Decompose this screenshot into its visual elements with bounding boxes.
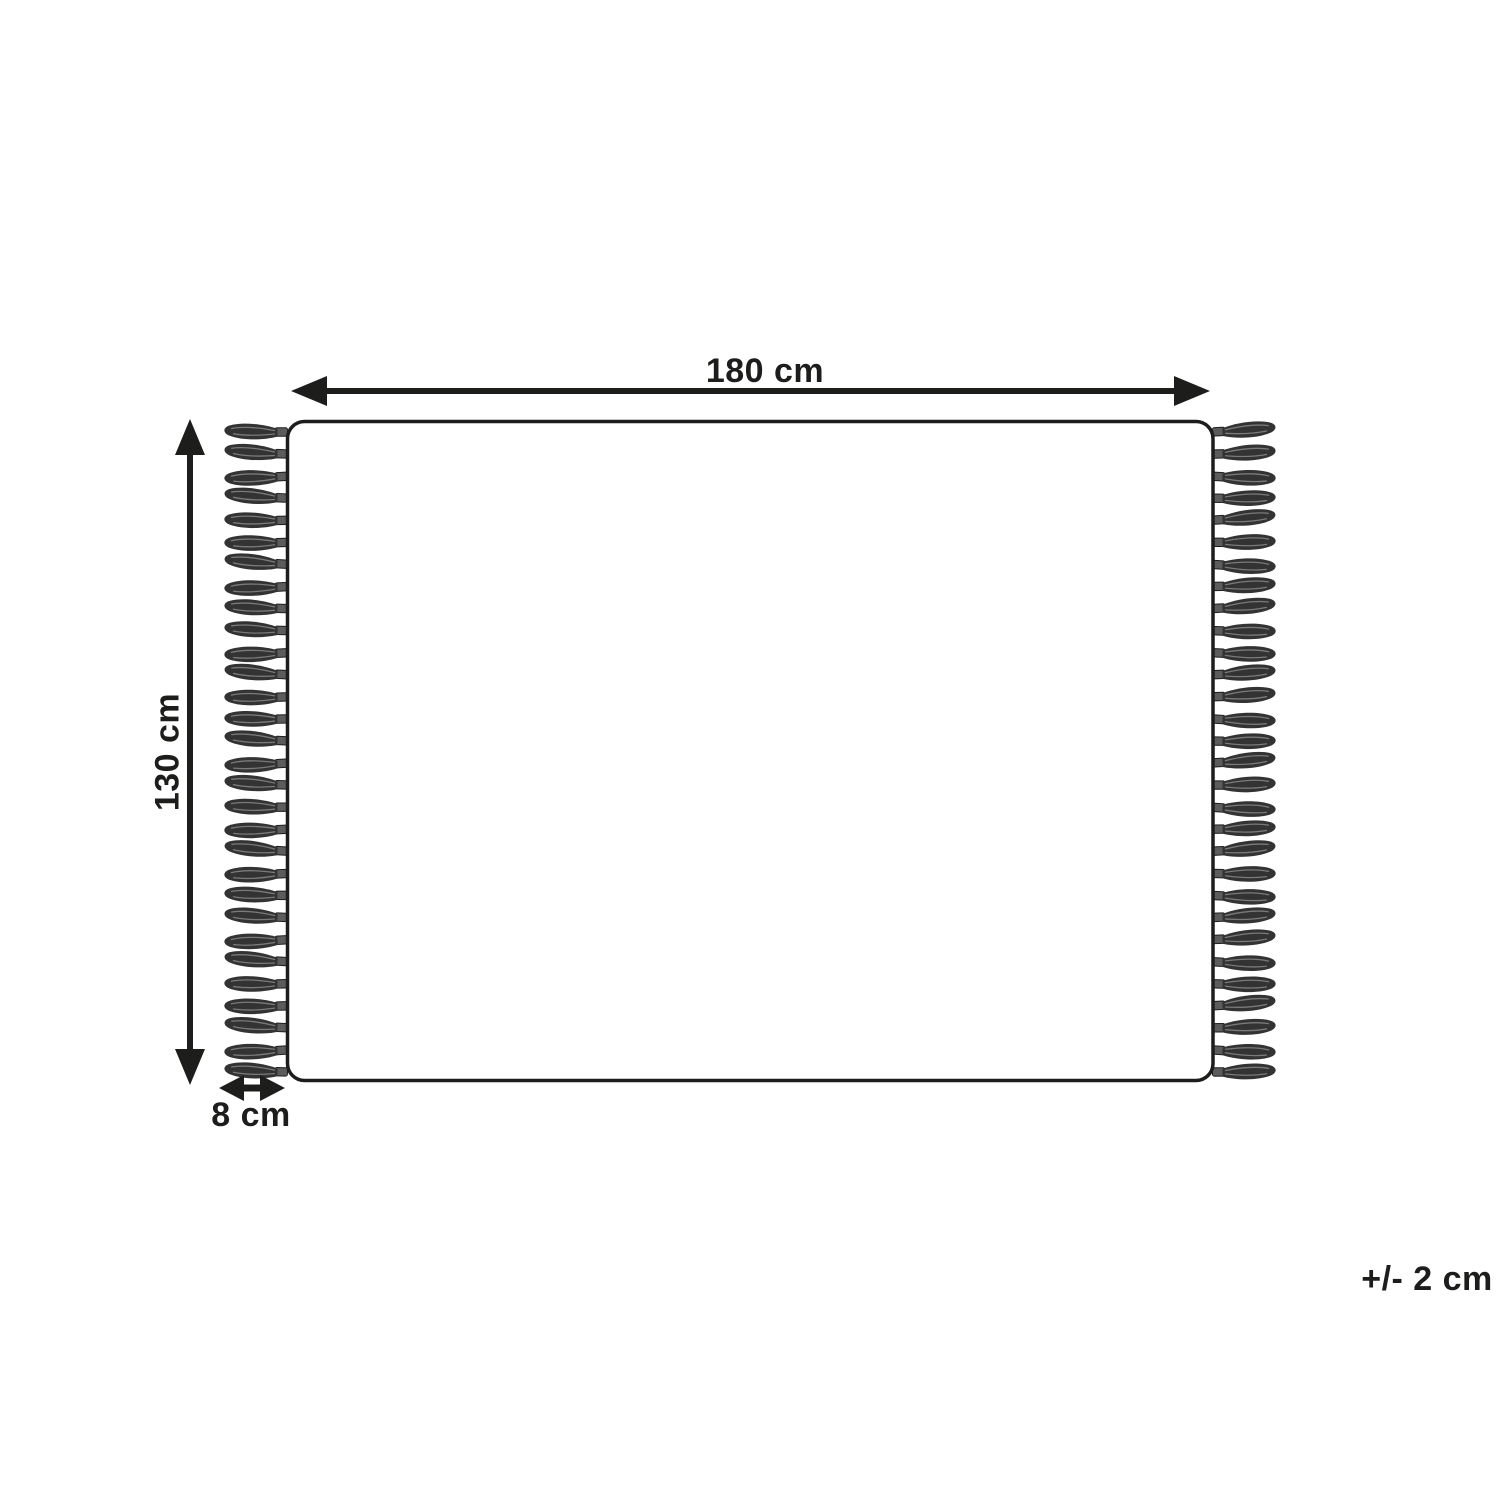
tassel (224, 950, 288, 969)
tassel (1212, 664, 1276, 683)
tassel (224, 997, 288, 1014)
tassel (224, 865, 288, 884)
tassel (1212, 686, 1276, 704)
tolerance-label: +/- 2 cm (1361, 1260, 1493, 1299)
tassel (224, 552, 288, 572)
tassel (224, 729, 288, 748)
height-dimension-label: 130 cm (149, 693, 188, 811)
tassel (1212, 508, 1276, 528)
tassel (224, 711, 287, 728)
tassel (1212, 839, 1276, 858)
tassel (224, 1062, 288, 1080)
tassel (1212, 711, 1276, 730)
fringe-dimension-label: 8 cm (211, 1096, 291, 1135)
tassel (1212, 907, 1276, 925)
tassel (1212, 622, 1276, 640)
tassel (224, 487, 288, 506)
tassel (1212, 865, 1276, 882)
height-arrow-head-top (175, 419, 205, 455)
tassel (1212, 444, 1276, 461)
tassel (1212, 820, 1275, 836)
tassel (224, 755, 288, 775)
tassel (1212, 953, 1276, 972)
tassel (1212, 751, 1276, 771)
tassel (224, 644, 288, 663)
tassel (224, 688, 288, 706)
tassel (1212, 597, 1276, 616)
tassel (1212, 556, 1276, 576)
tassel (224, 907, 288, 925)
right-fringe (1212, 420, 1276, 1079)
tassel (224, 975, 287, 992)
tassel (224, 663, 288, 682)
tassel (224, 799, 287, 815)
tassel (224, 578, 288, 597)
tassel (1212, 1019, 1275, 1036)
tassel (224, 512, 287, 528)
tassel (224, 931, 288, 951)
tassel (1212, 994, 1276, 1013)
tassel (1212, 733, 1275, 750)
width-dimension-label: 180 cm (706, 352, 824, 391)
tassel (1212, 577, 1275, 594)
tassel (224, 443, 288, 461)
tassel (224, 599, 287, 616)
left-fringe (224, 424, 288, 1080)
rug-outline (288, 422, 1214, 1081)
tassel (1212, 776, 1275, 792)
tassel (1212, 468, 1276, 487)
tassel (1212, 799, 1276, 819)
tassel (1212, 1042, 1276, 1062)
tassel (224, 1016, 288, 1035)
tassel (1212, 490, 1275, 506)
height-arrow-head-bottom (175, 1049, 205, 1085)
tassel (1212, 420, 1276, 439)
tassel (224, 621, 287, 638)
tassel (224, 1042, 288, 1061)
tassel (224, 886, 287, 902)
tassel (1212, 644, 1276, 663)
tassel (224, 839, 288, 859)
dimension-diagram: 180 cm 130 cm 8 cm +/- 2 cm (0, 0, 1500, 1500)
tassel (1212, 929, 1276, 947)
tassel (1212, 975, 1276, 993)
tassel (224, 534, 288, 552)
tassel (224, 468, 288, 488)
tassel (1212, 887, 1276, 906)
tassel (224, 821, 288, 840)
diagram-graphics (0, 0, 1500, 1500)
tassel (224, 424, 287, 440)
tassel (224, 774, 288, 792)
width-arrow-head-right (1174, 376, 1210, 406)
width-arrow-head-left (291, 376, 327, 406)
tassel (1212, 1063, 1275, 1079)
tassel (1212, 534, 1275, 550)
